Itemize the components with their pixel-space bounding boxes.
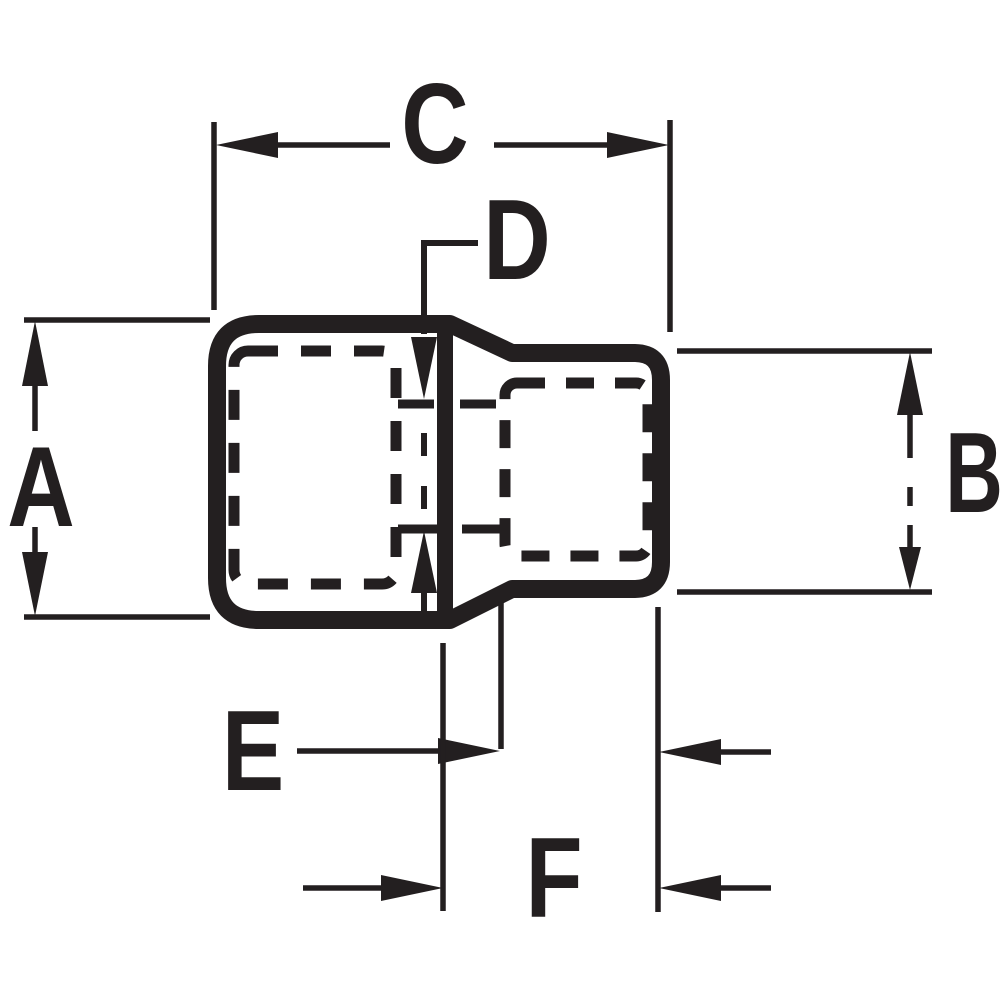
dimension-f: F bbox=[303, 607, 771, 942]
socket-adapter-dimension-drawing: A B C D E bbox=[0, 0, 1000, 1000]
dimension-b: B bbox=[677, 351, 1000, 592]
small-end-hidden-square bbox=[505, 383, 648, 556]
dimension-c: C bbox=[214, 61, 670, 332]
dim-a-arrow-down-icon bbox=[22, 552, 48, 616]
dim-label-c: C bbox=[401, 61, 469, 188]
dim-label-f: F bbox=[525, 815, 582, 942]
dimension-e: E bbox=[222, 602, 771, 815]
dim-label-b: B bbox=[945, 409, 1000, 536]
dim-label-e: E bbox=[222, 688, 284, 815]
dim-b-arrow-down-icon bbox=[899, 547, 921, 590]
dim-b-arrow-up-icon bbox=[897, 352, 923, 415]
dim-f-arrow-left-icon bbox=[659, 875, 721, 901]
dim-c-arrow-right-icon bbox=[607, 132, 669, 158]
large-end-hidden-square bbox=[234, 351, 396, 584]
dim-f-arrow-right-icon bbox=[381, 875, 443, 901]
part-outline-group bbox=[217, 324, 661, 620]
dim-d-arrow-down-icon bbox=[411, 337, 437, 399]
dim-label-a: A bbox=[7, 424, 75, 551]
technical-drawing-canvas: A B C D E bbox=[0, 0, 1000, 1000]
dim-e-arrow-right-icon bbox=[438, 738, 500, 764]
dim-c-arrow-left-icon bbox=[216, 132, 278, 158]
dim-label-d: D bbox=[483, 177, 551, 304]
dim-d-arrow-up-icon bbox=[411, 531, 437, 593]
dim-a-arrow-up-icon bbox=[22, 321, 48, 386]
dim-e-arrow-left-icon bbox=[659, 739, 721, 765]
dimension-a: A bbox=[7, 320, 210, 617]
